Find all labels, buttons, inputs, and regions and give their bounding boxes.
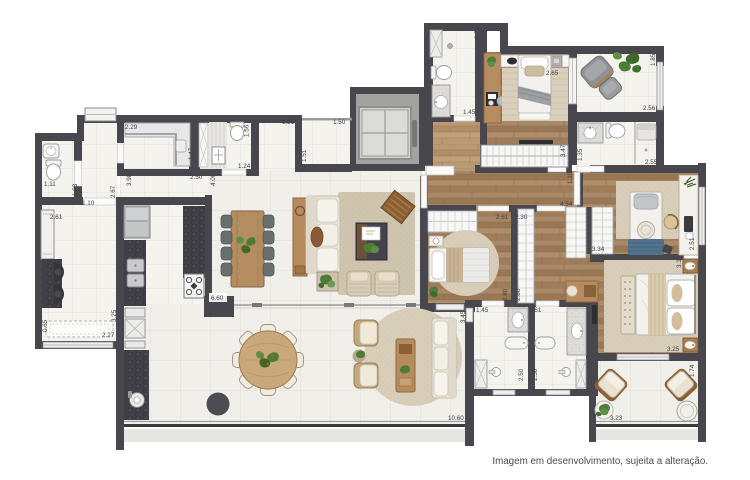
- svg-text:1.11: 1.11: [44, 181, 56, 188]
- svg-text:3.45: 3.45: [460, 310, 467, 323]
- svg-text:10.60: 10.60: [448, 415, 464, 422]
- svg-text:1.74: 1.74: [689, 364, 696, 377]
- svg-text:3.25: 3.25: [667, 346, 680, 353]
- svg-text:2.70: 2.70: [474, 26, 481, 39]
- svg-text:1.24: 1.24: [238, 163, 251, 170]
- svg-text:3.11: 3.11: [676, 256, 683, 268]
- svg-text:1.61: 1.61: [529, 307, 542, 314]
- svg-text:3.25: 3.25: [111, 309, 118, 322]
- svg-text:1.35: 1.35: [577, 148, 584, 161]
- svg-text:2.61: 2.61: [496, 214, 509, 221]
- svg-text:2.56: 2.56: [643, 105, 656, 112]
- svg-text:2.27: 2.27: [102, 332, 115, 339]
- svg-text:1.51: 1.51: [301, 149, 308, 162]
- svg-text:3.98: 3.98: [126, 173, 133, 186]
- svg-text:2.67: 2.67: [110, 185, 117, 198]
- svg-text:4.54: 4.54: [560, 201, 573, 208]
- svg-text:1.45: 1.45: [463, 109, 476, 116]
- svg-text:2.29: 2.29: [125, 124, 138, 131]
- svg-text:1.56: 1.56: [244, 124, 251, 137]
- svg-text:2.61: 2.61: [50, 214, 63, 221]
- svg-text:2.30: 2.30: [515, 214, 528, 221]
- svg-text:1.10: 1.10: [567, 171, 574, 184]
- svg-text:3.34: 3.34: [592, 246, 605, 253]
- svg-text:2.50: 2.50: [532, 368, 539, 381]
- svg-text:3.23: 3.23: [610, 415, 623, 422]
- svg-text:1.21: 1.21: [282, 119, 295, 126]
- svg-text:1.47: 1.47: [188, 147, 195, 160]
- svg-text:3.47: 3.47: [560, 144, 567, 157]
- svg-text:2.51: 2.51: [689, 237, 696, 250]
- svg-text:2.50: 2.50: [190, 174, 203, 181]
- svg-text:2.65: 2.65: [546, 70, 559, 77]
- svg-text:1.10: 1.10: [82, 200, 95, 207]
- svg-text:1.85: 1.85: [650, 53, 657, 66]
- svg-text:6.60: 6.60: [211, 295, 224, 302]
- svg-text:2.80: 2.80: [502, 288, 509, 301]
- svg-text:1.50: 1.50: [333, 119, 346, 126]
- svg-text:2.80: 2.80: [515, 288, 522, 301]
- svg-text:1.93: 1.93: [72, 183, 79, 196]
- svg-text:1.45: 1.45: [476, 307, 489, 314]
- svg-text:2.55: 2.55: [645, 159, 658, 166]
- svg-text:2.50: 2.50: [518, 368, 525, 381]
- svg-text:0.65: 0.65: [42, 319, 49, 332]
- svg-text:4.00: 4.00: [210, 173, 217, 186]
